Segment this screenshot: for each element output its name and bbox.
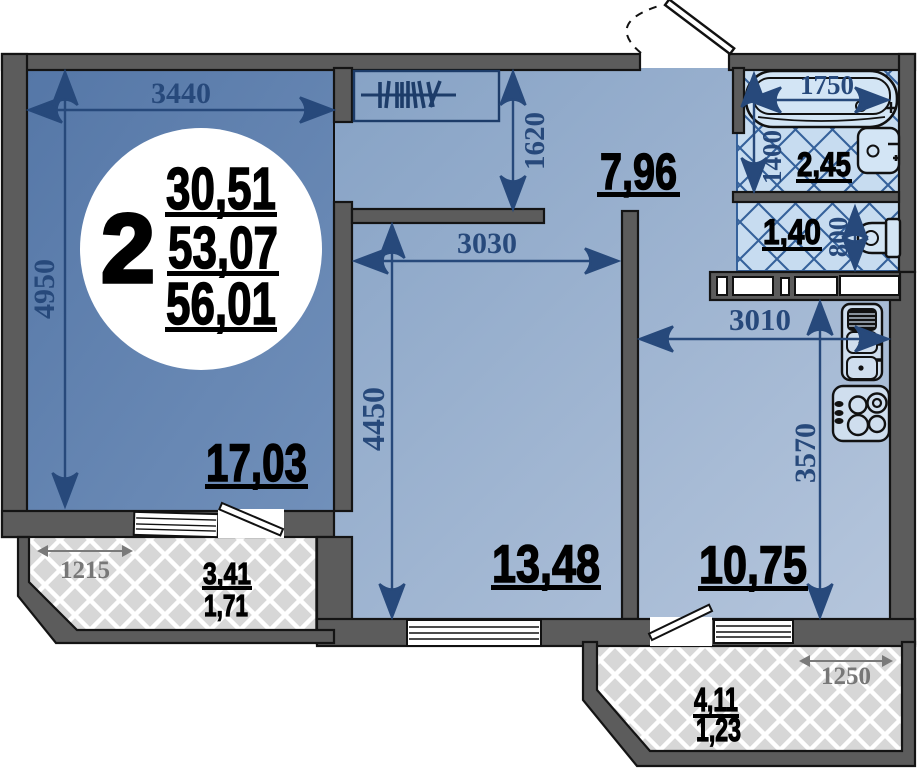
- svg-text:1750: 1750: [800, 70, 854, 100]
- svg-text:3,41: 3,41: [203, 556, 251, 591]
- svg-text:1620: 1620: [519, 112, 551, 170]
- svg-text:1,23: 1,23: [696, 711, 741, 748]
- svg-text:1,71: 1,71: [204, 588, 248, 623]
- svg-text:3030: 3030: [457, 227, 517, 260]
- svg-text:4450: 4450: [355, 387, 391, 451]
- svg-text:1215: 1215: [60, 557, 110, 584]
- svg-text:1400: 1400: [757, 130, 787, 184]
- svg-text:800: 800: [823, 217, 853, 258]
- svg-text:7,96: 7,96: [600, 143, 677, 200]
- svg-text:4950: 4950: [28, 259, 61, 319]
- svg-text:2: 2: [101, 194, 155, 303]
- svg-text:3570: 3570: [789, 423, 822, 483]
- svg-text:3440: 3440: [151, 77, 211, 110]
- svg-text:1250: 1250: [821, 663, 871, 690]
- svg-text:3010: 3010: [729, 302, 791, 337]
- svg-text:1,40: 1,40: [763, 213, 821, 252]
- svg-text:2,45: 2,45: [797, 146, 851, 184]
